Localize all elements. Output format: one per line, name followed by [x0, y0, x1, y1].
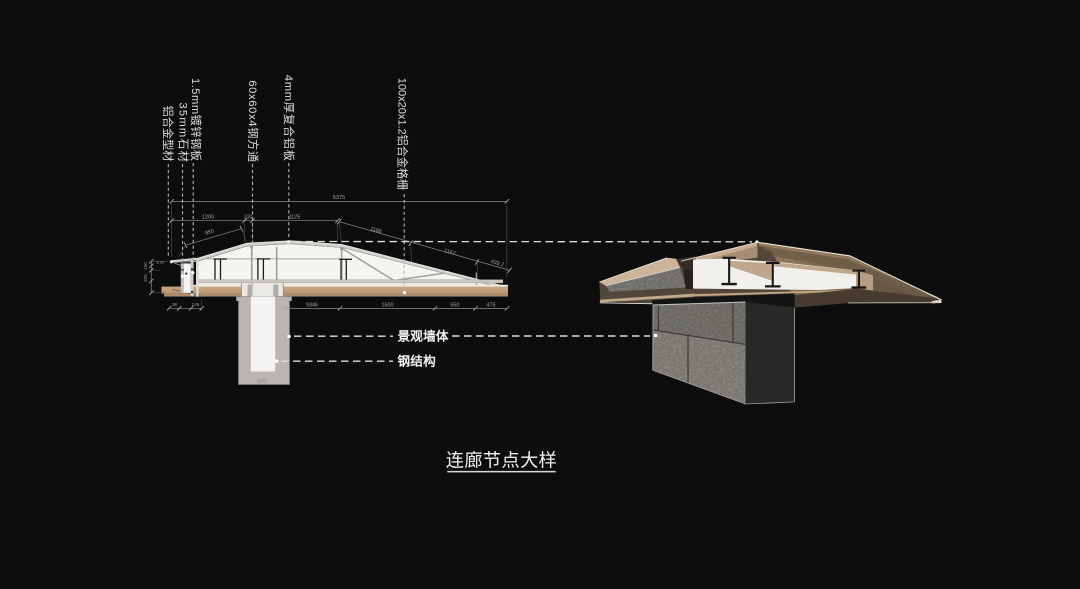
- svg-text:1.5mm镀锌钢板: 1.5mm镀锌钢板: [189, 78, 203, 161]
- svg-text:铝合金型材: 铝合金型材: [161, 106, 175, 162]
- svg-text:1125: 1125: [289, 214, 301, 220]
- svg-text:600: 600: [258, 379, 267, 385]
- svg-text:38: 38: [172, 302, 178, 307]
- svg-text:35mm石材: 35mm石材: [177, 103, 191, 162]
- svg-text:475: 475: [487, 302, 496, 308]
- svg-text:150: 150: [143, 262, 148, 270]
- svg-text:170: 170: [157, 260, 165, 265]
- svg-text:325: 325: [143, 274, 148, 282]
- svg-text:1500: 1500: [382, 302, 394, 308]
- svg-text:连廊节点大样: 连廊节点大样: [446, 451, 558, 471]
- svg-text:景观墙体: 景观墙体: [398, 329, 449, 344]
- svg-text:钢结构: 钢结构: [398, 354, 437, 369]
- svg-text:60x60x4钢方通: 60x60x4钢方通: [246, 80, 260, 162]
- svg-text:100: 100: [244, 214, 253, 220]
- svg-text:100x20x1.2铝合金格栅: 100x20x1.2铝合金格栅: [396, 78, 410, 191]
- svg-text:1200: 1200: [202, 214, 214, 220]
- svg-text:126: 126: [192, 302, 200, 307]
- svg-text:5375: 5375: [333, 195, 345, 201]
- svg-text:9346: 9346: [306, 302, 318, 308]
- svg-text:4mm厚复合铝板: 4mm厚复合铝板: [282, 75, 296, 161]
- svg-text:650: 650: [451, 302, 460, 308]
